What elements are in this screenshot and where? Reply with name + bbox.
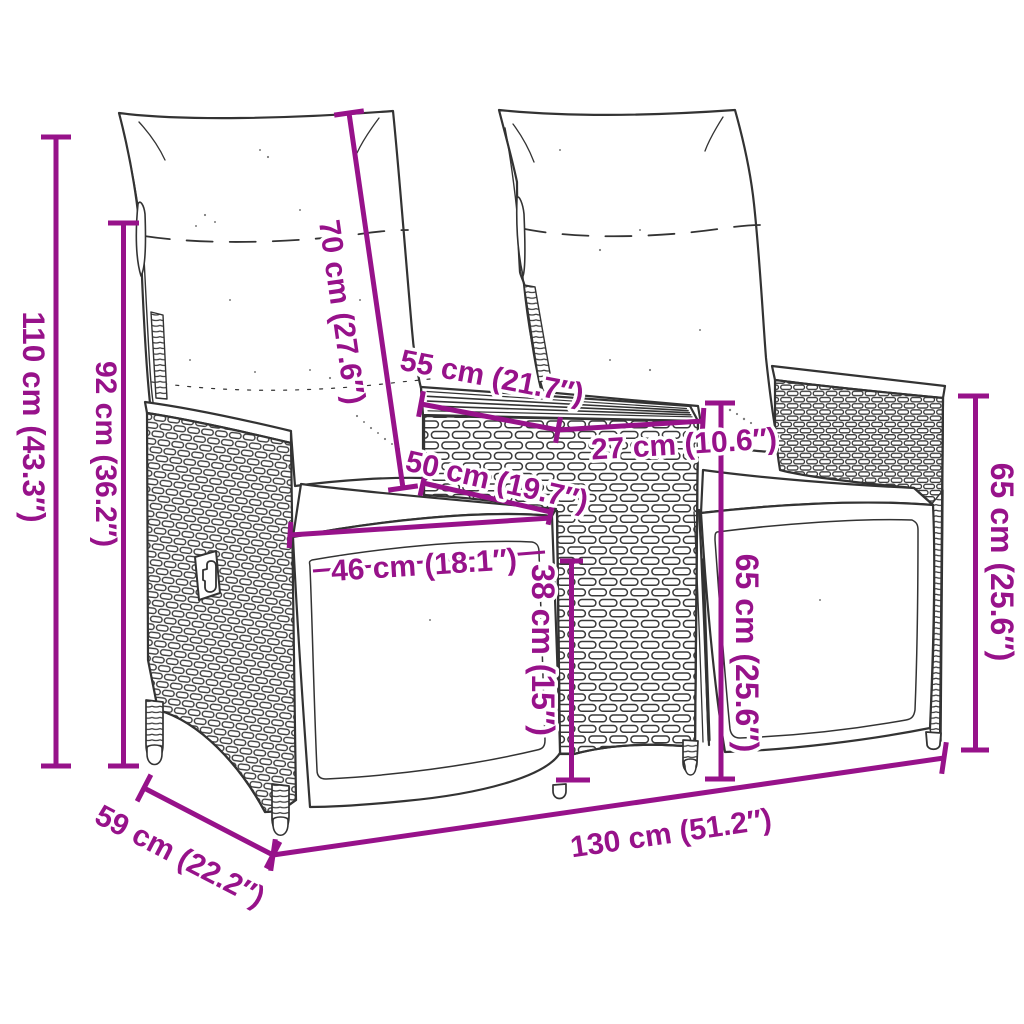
svg-text:65 cm (25.6″): 65 cm (25.6″) (984, 463, 1020, 662)
svg-text:65 cm (25.6″): 65 cm (25.6″) (729, 554, 765, 753)
svg-text:110 cm (43.3″): 110 cm (43.3″) (16, 311, 52, 522)
svg-text:38 cm (15″): 38 cm (15″) (525, 564, 561, 736)
svg-text:92 cm (36.2″): 92 cm (36.2″) (89, 361, 122, 547)
